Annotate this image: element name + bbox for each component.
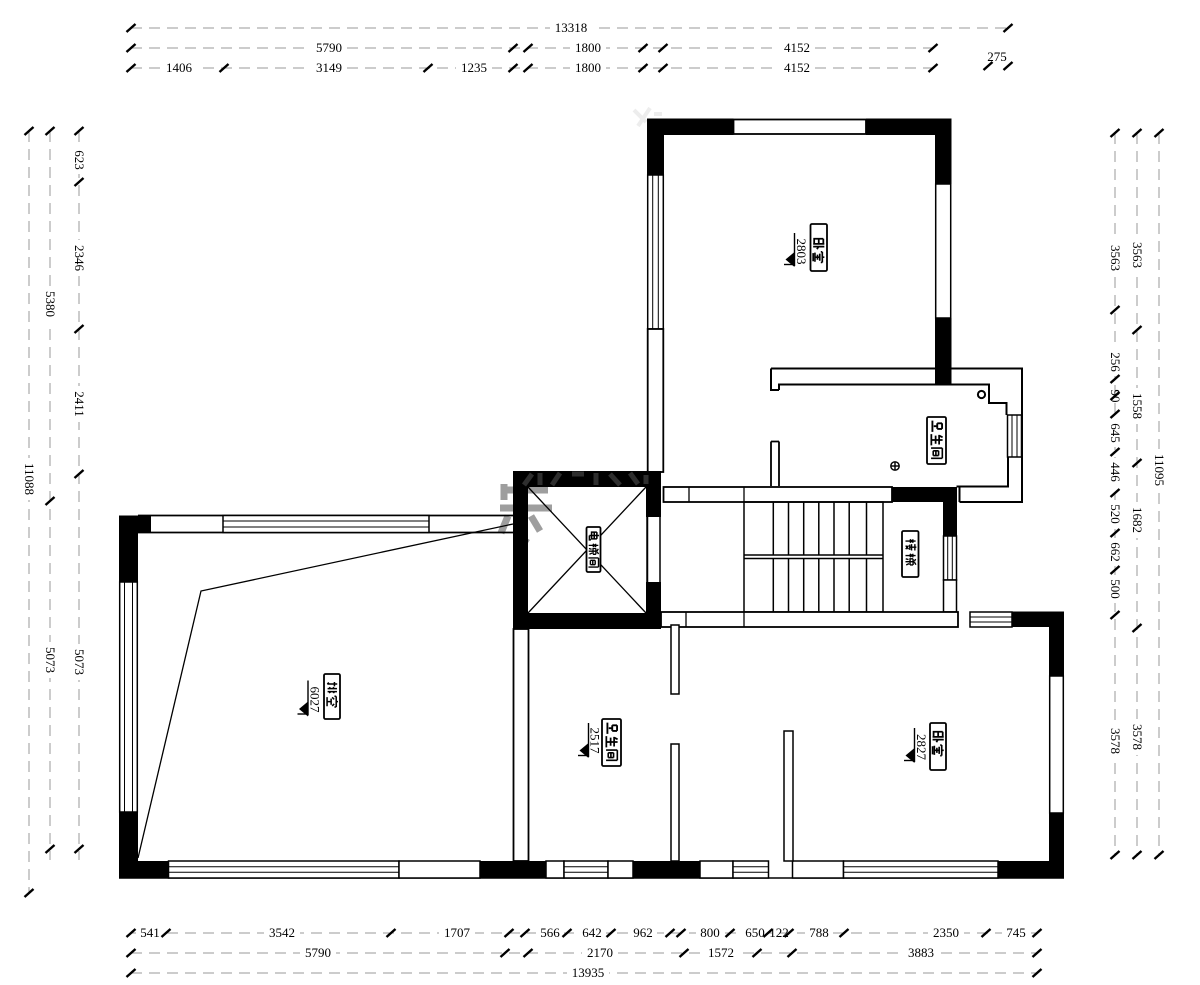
- svg-text:3563: 3563: [1130, 242, 1145, 268]
- svg-text:1800: 1800: [575, 40, 601, 55]
- svg-text:6027: 6027: [308, 687, 323, 714]
- svg-text:623: 623: [72, 150, 87, 170]
- svg-text:1682: 1682: [1130, 507, 1145, 533]
- svg-text:5380: 5380: [43, 291, 58, 317]
- svg-text:5790: 5790: [305, 945, 331, 960]
- svg-text:3883: 3883: [908, 945, 934, 960]
- svg-text:500: 500: [1108, 579, 1123, 599]
- svg-text:3578: 3578: [1108, 728, 1123, 754]
- svg-text:650: 650: [745, 925, 765, 940]
- svg-text:5790: 5790: [316, 40, 342, 55]
- svg-text:2170: 2170: [587, 945, 613, 960]
- svg-text:3149: 3149: [316, 60, 342, 75]
- svg-text:13318: 13318: [555, 20, 588, 35]
- svg-text:788: 788: [809, 925, 829, 940]
- svg-text:5073: 5073: [72, 649, 87, 675]
- svg-text:800: 800: [700, 925, 720, 940]
- svg-text:745: 745: [1006, 925, 1026, 940]
- svg-text:566: 566: [540, 925, 560, 940]
- svg-text:1235: 1235: [461, 60, 487, 75]
- svg-text:2411: 2411: [72, 391, 87, 417]
- svg-text:520: 520: [1108, 504, 1123, 524]
- svg-text:1406: 1406: [166, 60, 193, 75]
- svg-text:2827: 2827: [914, 734, 929, 761]
- svg-text:1558: 1558: [1130, 393, 1145, 419]
- svg-text:13935: 13935: [572, 965, 605, 980]
- svg-text:3563: 3563: [1108, 245, 1123, 271]
- svg-text:541: 541: [140, 925, 160, 940]
- svg-text:642: 642: [582, 925, 602, 940]
- svg-text:4152: 4152: [784, 60, 810, 75]
- svg-text:5073: 5073: [43, 647, 58, 673]
- svg-text:1572: 1572: [708, 945, 734, 960]
- svg-text:122: 122: [769, 925, 789, 940]
- svg-text:11088: 11088: [22, 463, 37, 495]
- svg-text:1800: 1800: [575, 60, 601, 75]
- svg-text:446: 446: [1108, 462, 1123, 482]
- svg-text:3542: 3542: [269, 925, 295, 940]
- svg-text:2346: 2346: [72, 245, 87, 272]
- svg-text:645: 645: [1108, 423, 1123, 443]
- svg-text:256: 256: [1108, 352, 1123, 372]
- svg-text:962: 962: [633, 925, 653, 940]
- svg-text:275: 275: [987, 49, 1007, 64]
- svg-text:3578: 3578: [1130, 724, 1145, 750]
- svg-text:662: 662: [1108, 542, 1123, 562]
- svg-text:2517: 2517: [588, 728, 603, 755]
- svg-text:1707: 1707: [444, 925, 471, 940]
- svg-text:11095: 11095: [1152, 454, 1167, 486]
- svg-text:2350: 2350: [933, 925, 959, 940]
- svg-text:4152: 4152: [784, 40, 810, 55]
- svg-text:2803: 2803: [794, 239, 809, 265]
